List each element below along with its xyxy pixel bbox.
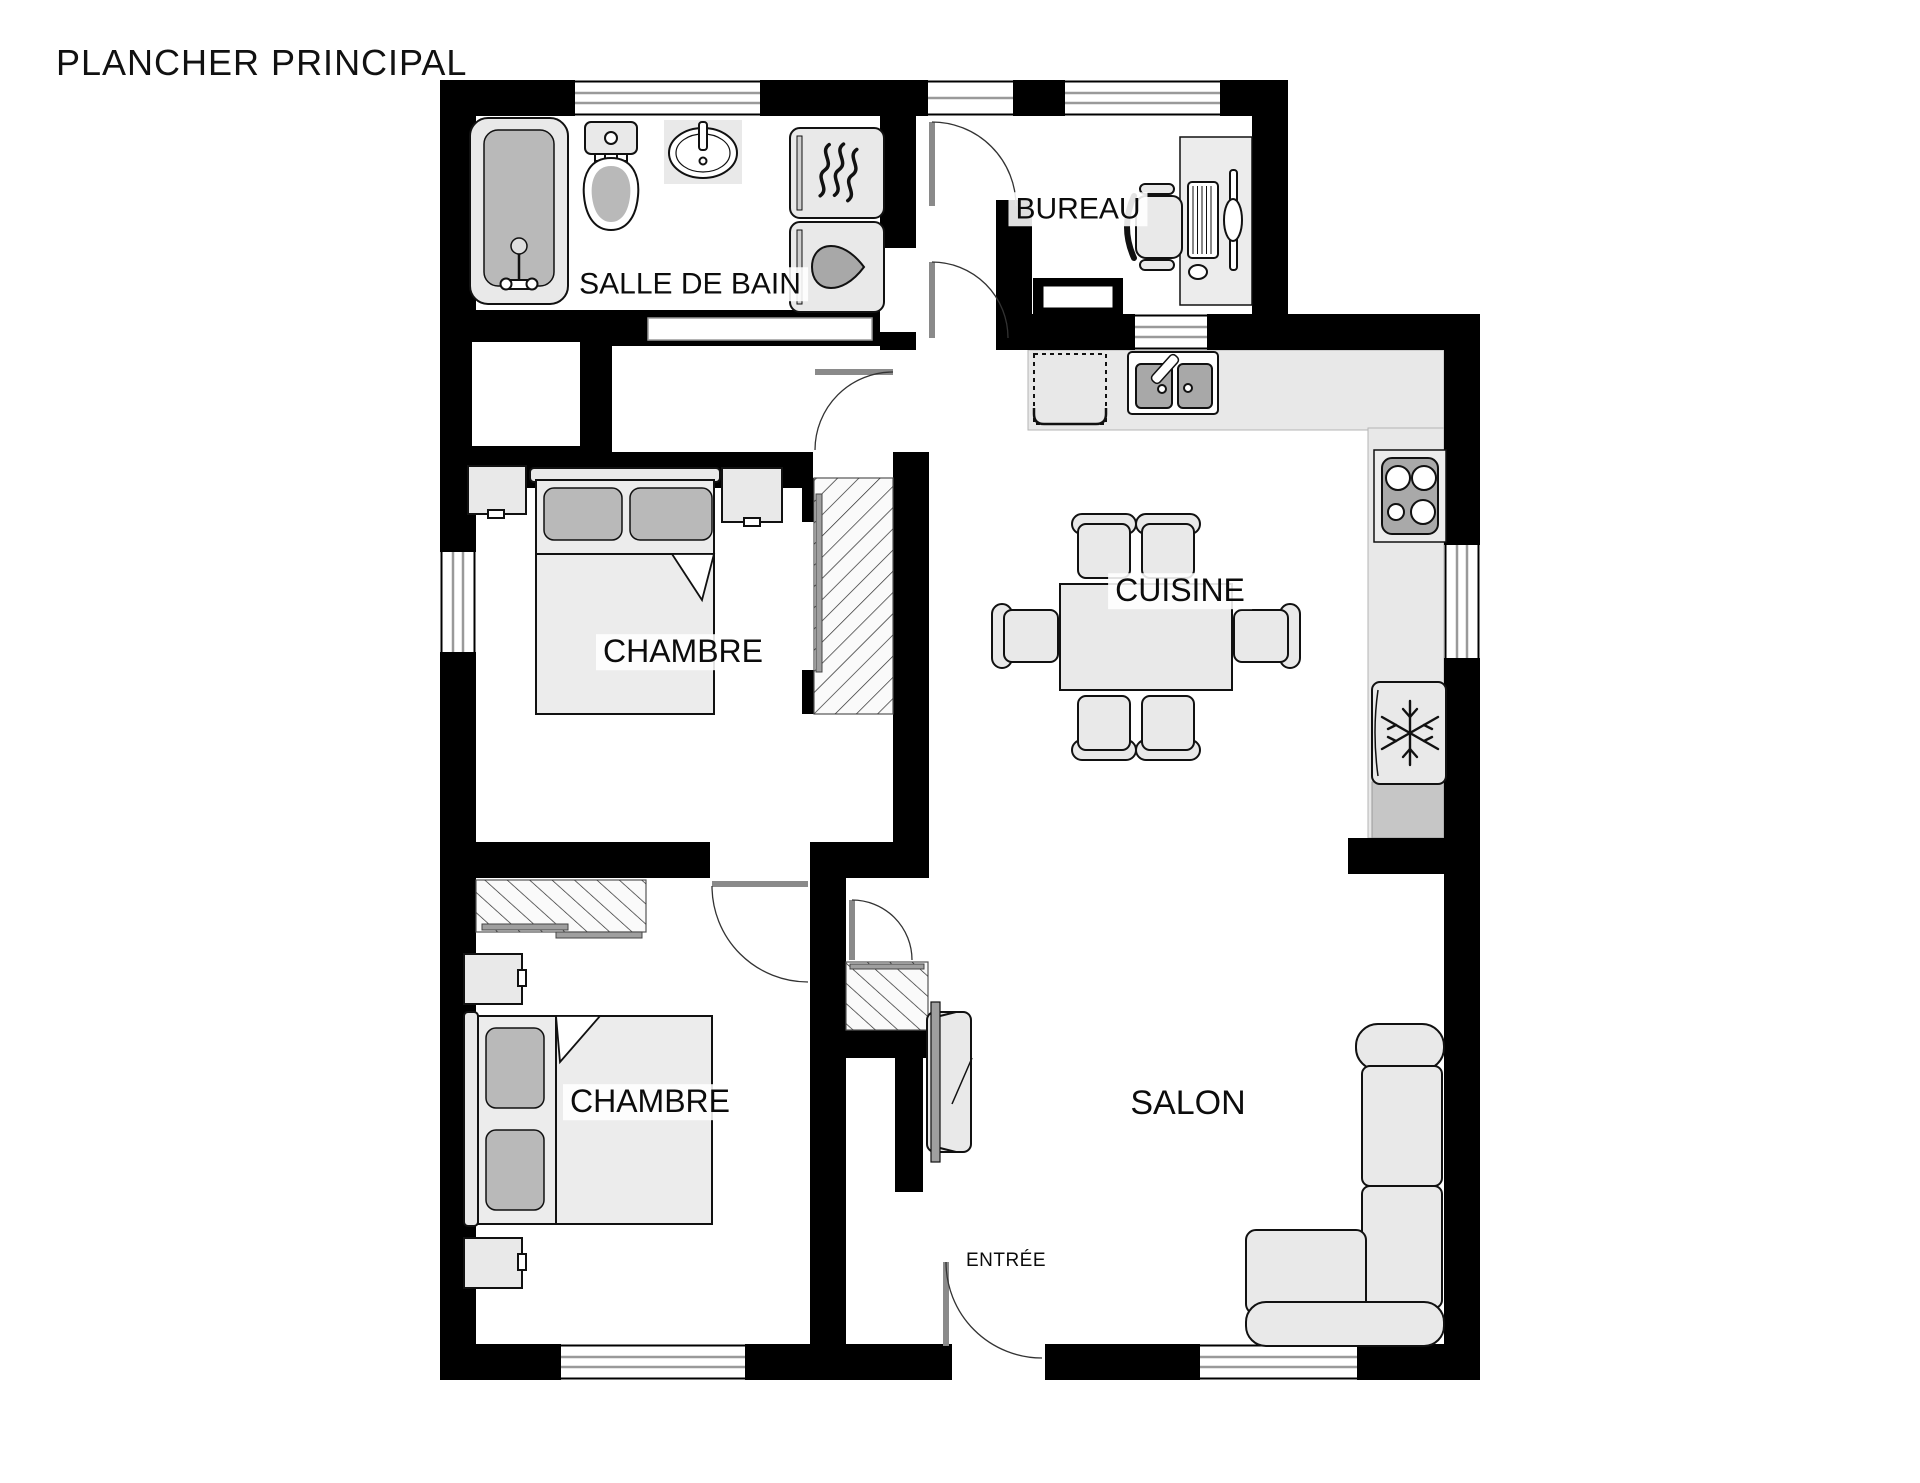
shelf-niche	[648, 318, 872, 340]
room-label-bathroom: SALLE DE BAIN	[572, 267, 808, 301]
nightstand-icon	[464, 1238, 522, 1288]
floor-plan-page: PLANCHER PRINCIPAL SALLE DE BAIN BUREAU …	[0, 0, 1920, 1483]
sliding-door-icon	[816, 494, 822, 672]
nightstand-icon	[464, 954, 522, 1004]
tv-unit-icon	[927, 1002, 972, 1162]
hall-closet-door-icon	[849, 900, 912, 960]
kitchen-right-window-icon	[1444, 545, 1480, 658]
chimney-inner	[1043, 286, 1113, 308]
hall-closet-icon	[846, 962, 928, 1030]
chair-icon	[1234, 604, 1300, 668]
closet-icon	[476, 880, 646, 938]
pillow-icon	[544, 488, 622, 540]
closet-icon	[814, 478, 893, 714]
chair-icon	[1136, 696, 1200, 760]
tv-screen-icon	[931, 1002, 940, 1162]
storage-niche	[472, 342, 580, 446]
office-window-icon	[928, 80, 1013, 116]
mouse-icon	[1189, 265, 1207, 279]
pillow-icon	[486, 1130, 544, 1210]
toilet-icon	[584, 122, 639, 230]
bathroom-sink-icon	[664, 120, 742, 184]
bedroom2-window-icon	[561, 1344, 745, 1380]
nightstand-icon	[468, 466, 526, 514]
living-window-icon	[1200, 1344, 1357, 1380]
kitchen-sink-icon	[1128, 352, 1218, 414]
kitchen-window-icon	[1135, 314, 1207, 350]
chair-icon	[1136, 514, 1200, 578]
entry-door-icon	[943, 1262, 1042, 1358]
office-door-icon	[929, 122, 1016, 206]
plan-title: PLANCHER PRINCIPAL	[56, 42, 467, 84]
desk-icon	[1180, 137, 1252, 305]
chair-icon	[1072, 696, 1136, 760]
fridge-icon	[1372, 682, 1446, 784]
bathroom-window-icon	[575, 80, 760, 116]
dishwasher-icon	[1034, 354, 1106, 424]
bedroom1-furniture	[468, 466, 893, 714]
bed-icon	[530, 468, 720, 714]
dryer-icon	[790, 128, 884, 218]
bedroom1-window-icon	[440, 552, 476, 652]
bathtub-icon	[470, 118, 568, 304]
room-label-living-room: SALON	[1123, 1085, 1252, 1123]
chair-icon	[1072, 514, 1136, 578]
bedroom2-door-icon	[712, 881, 808, 982]
nightstand-icon	[722, 468, 782, 522]
pillow-icon	[486, 1028, 544, 1108]
room-label-office: BUREAU	[1008, 192, 1147, 226]
base-cabinet	[1372, 782, 1444, 838]
bedroom1-door-icon	[815, 369, 893, 450]
sofa-icon	[1246, 1024, 1444, 1346]
pillow-icon	[630, 488, 712, 540]
room-label-kitchen: CUISINE	[1108, 573, 1252, 609]
room-label-entry: ENTRÉE	[959, 1250, 1053, 1272]
stove-icon	[1374, 450, 1446, 542]
chair-icon	[992, 604, 1058, 668]
office-window2-icon	[1065, 80, 1220, 116]
room-label-bedroom-bottom: CHAMBRE	[563, 1084, 737, 1120]
room-label-bedroom-top: CHAMBRE	[596, 634, 770, 670]
